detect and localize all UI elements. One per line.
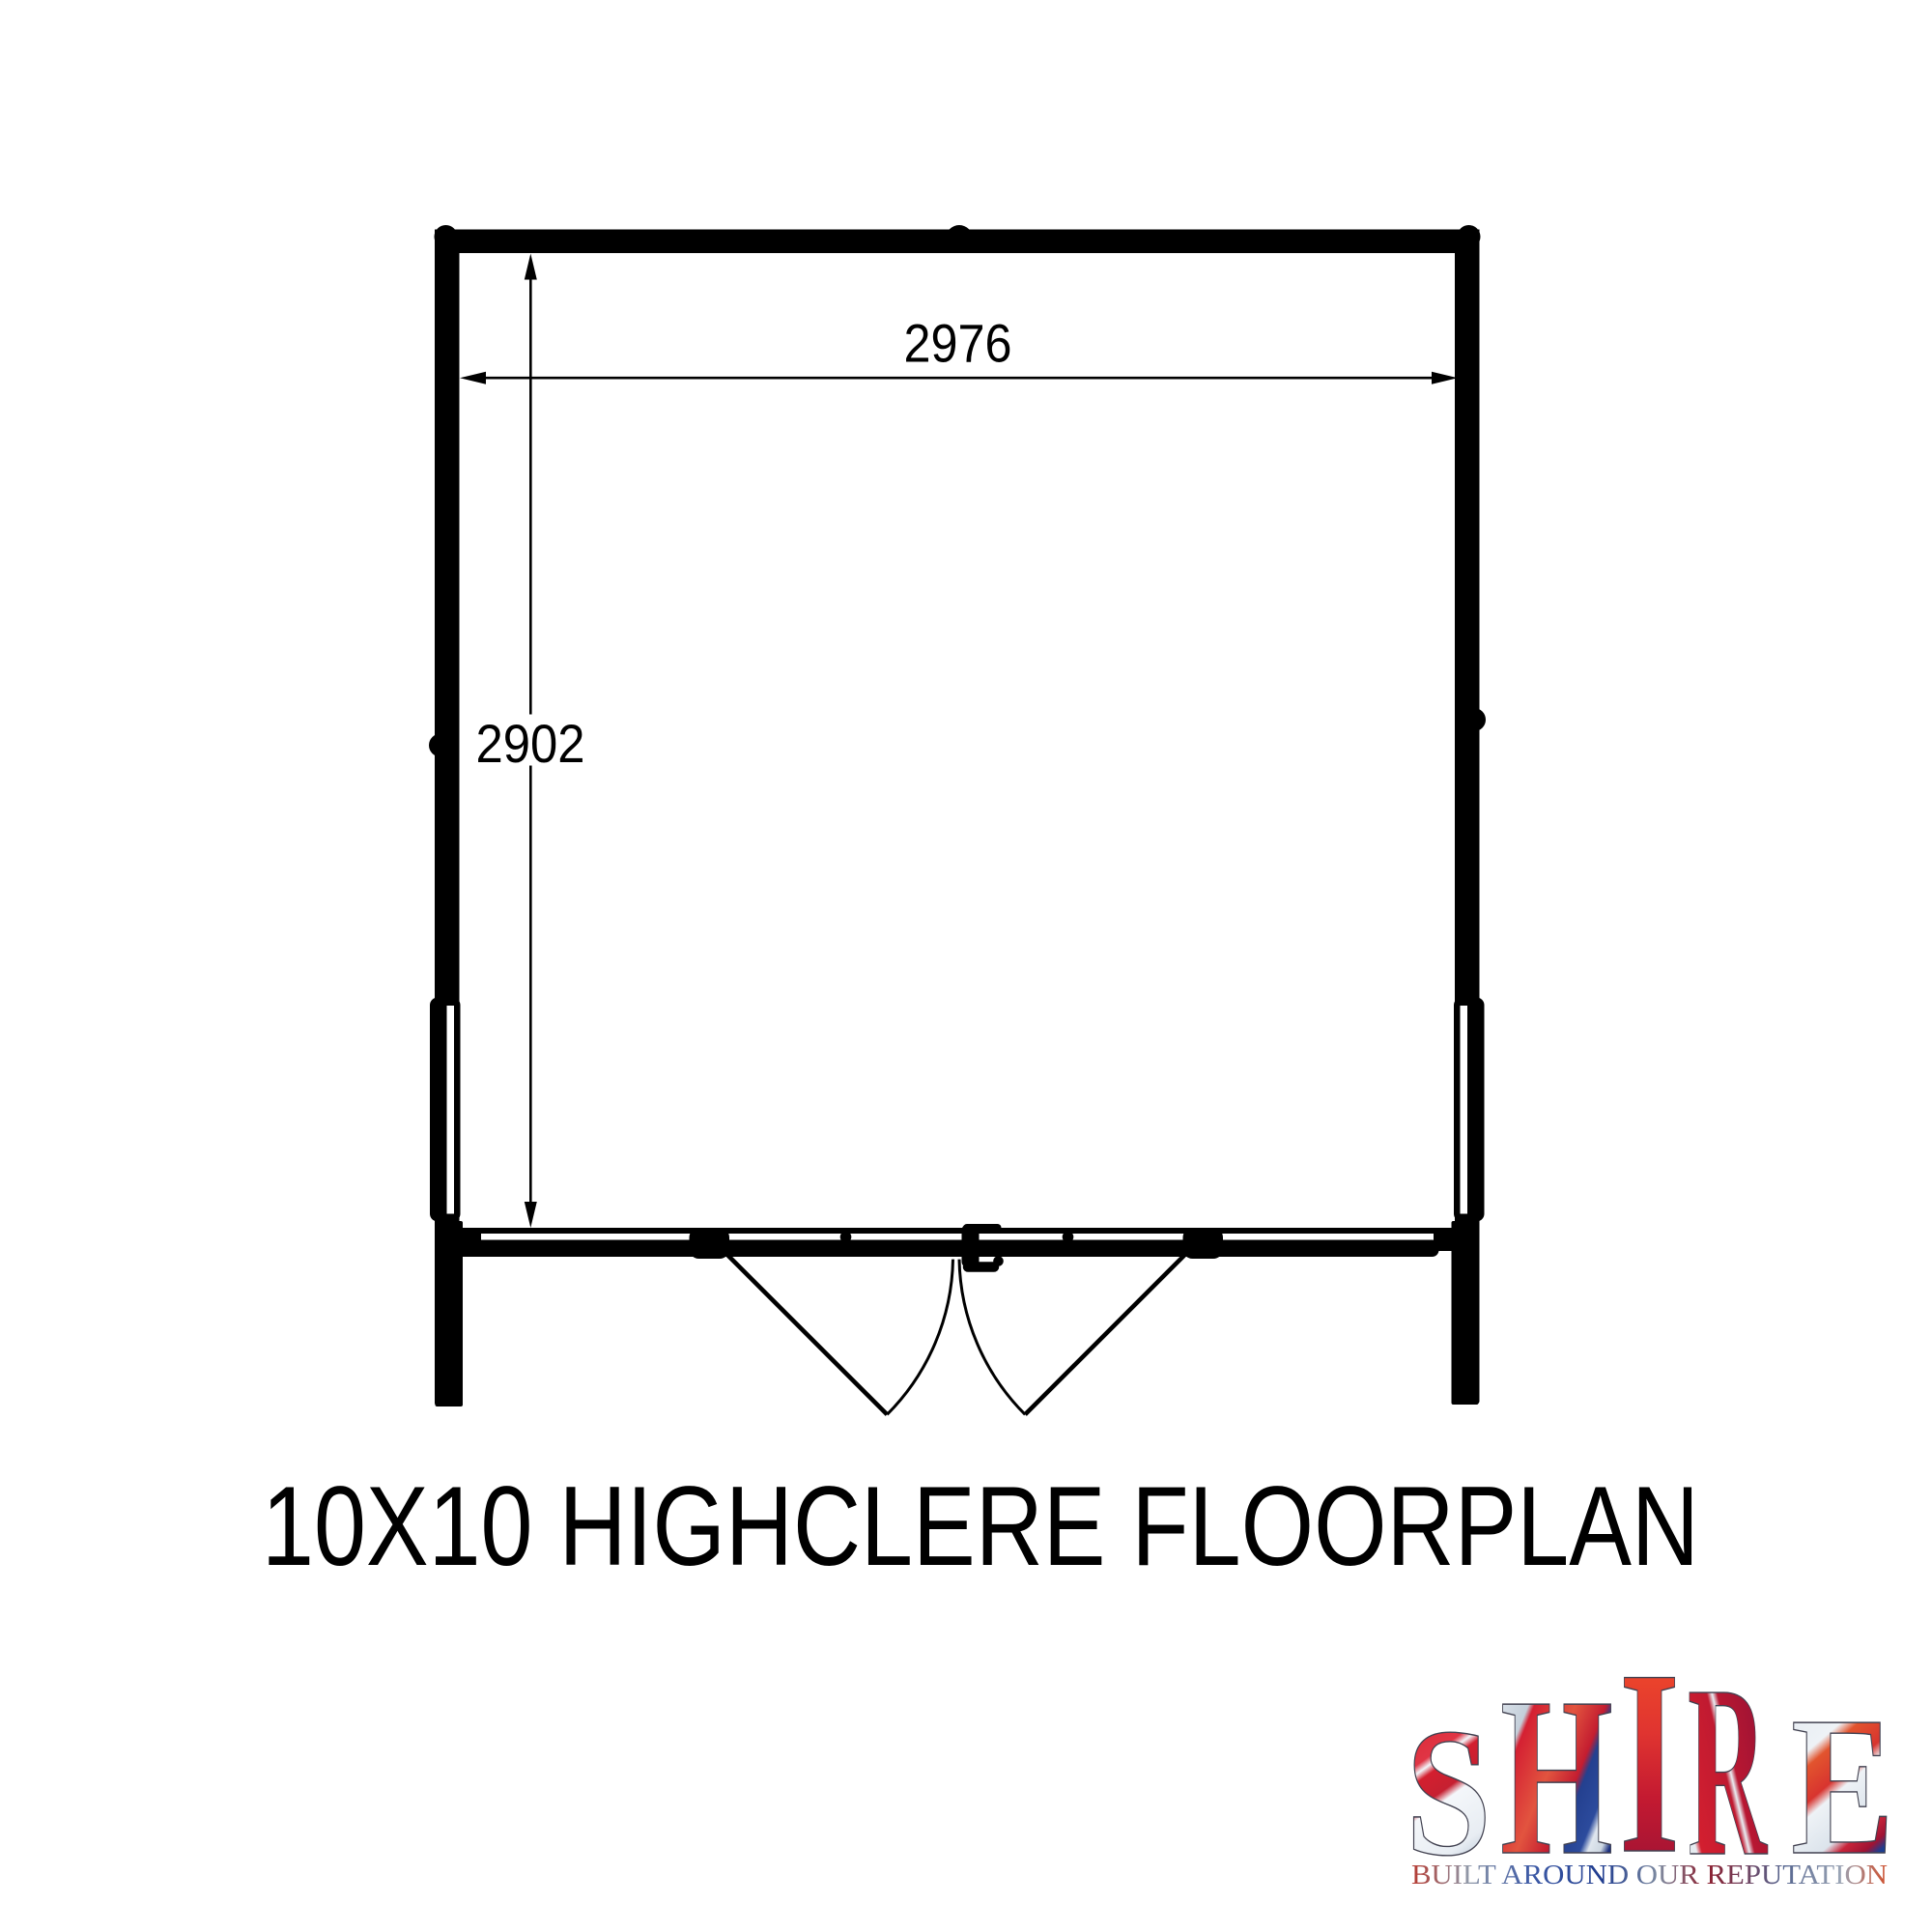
svg-text:2976: 2976 (904, 313, 1012, 374)
svg-text:BUILT AROUND OUR REPUTATION: BUILT AROUND OUR REPUTATION (1411, 1860, 1888, 1890)
svg-text:2902: 2902 (476, 713, 585, 774)
svg-text:10X10 HIGHCLERE FLOORPLAN: 10X10 HIGHCLERE FLOORPLAN (262, 1463, 1699, 1589)
